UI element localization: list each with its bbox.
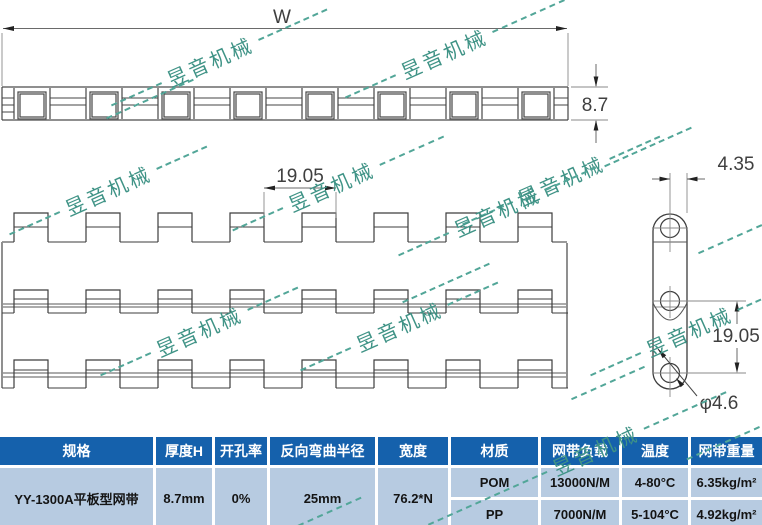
value-material-pom: POM [451,468,538,497]
side-view [2,87,590,120]
dimension-overall-width: W [2,7,568,86]
value-weight-pom: 6.35kg/m² [691,468,762,497]
dimension-plate-width: 4.35 [652,154,754,181]
dimension-hole-pitch: 19.05 [712,301,760,373]
value-load-pp: 7000N/M [541,500,619,525]
dim-thickness-label: 8.7 [582,95,608,116]
value-load-pom: 13000N/M [541,468,619,497]
header-spec: 规格 [0,437,153,465]
value-material-pp: PP [451,500,538,525]
dim-hole-diameter-label: φ4.6 [700,393,739,414]
cad-drawing: W 8.7 [0,0,762,434]
drawing-sheet: W 8.7 [0,0,762,525]
header-open-ratio: 开孔率 [215,437,267,465]
header-temperature: 温度 [622,437,688,465]
header-bend-radius: 反向弯曲半径 [270,437,375,465]
end-view [652,173,746,397]
dim-plate-width-label: 4.35 [718,154,755,175]
plan-view [2,213,590,388]
header-thickness: 厚度H [156,437,212,465]
value-thickness: 8.7mm [156,468,212,525]
header-load: 网带负载 [541,437,619,465]
value-temp-pom: 4-80°C [622,468,688,497]
value-width: 76.2*N [378,468,448,525]
dimension-pitch: 19.05 [264,166,336,218]
dimension-thickness: 8.7 [571,64,608,143]
spec-table: 规格 厚度H 开孔率 反向弯曲半径 宽度 材质 网带负载 温度 网带重量 YY-… [0,437,762,525]
header-weight: 网带重量 [691,437,762,465]
centerlines [652,173,746,397]
value-temp-pp: 5-104°C [622,500,688,525]
dim-w-label: W [273,7,291,28]
value-bend-radius: 25mm [270,468,375,525]
value-weight-pp: 4.92kg/m² [691,500,762,525]
header-width: 宽度 [378,437,448,465]
dim-hole-pitch-label: 19.05 [712,326,760,347]
dim-pitch-label: 19.05 [276,166,324,187]
value-open-ratio: 0% [215,468,267,525]
value-spec: YY-1300A平板型网带 [0,468,153,525]
header-material: 材质 [451,437,538,465]
